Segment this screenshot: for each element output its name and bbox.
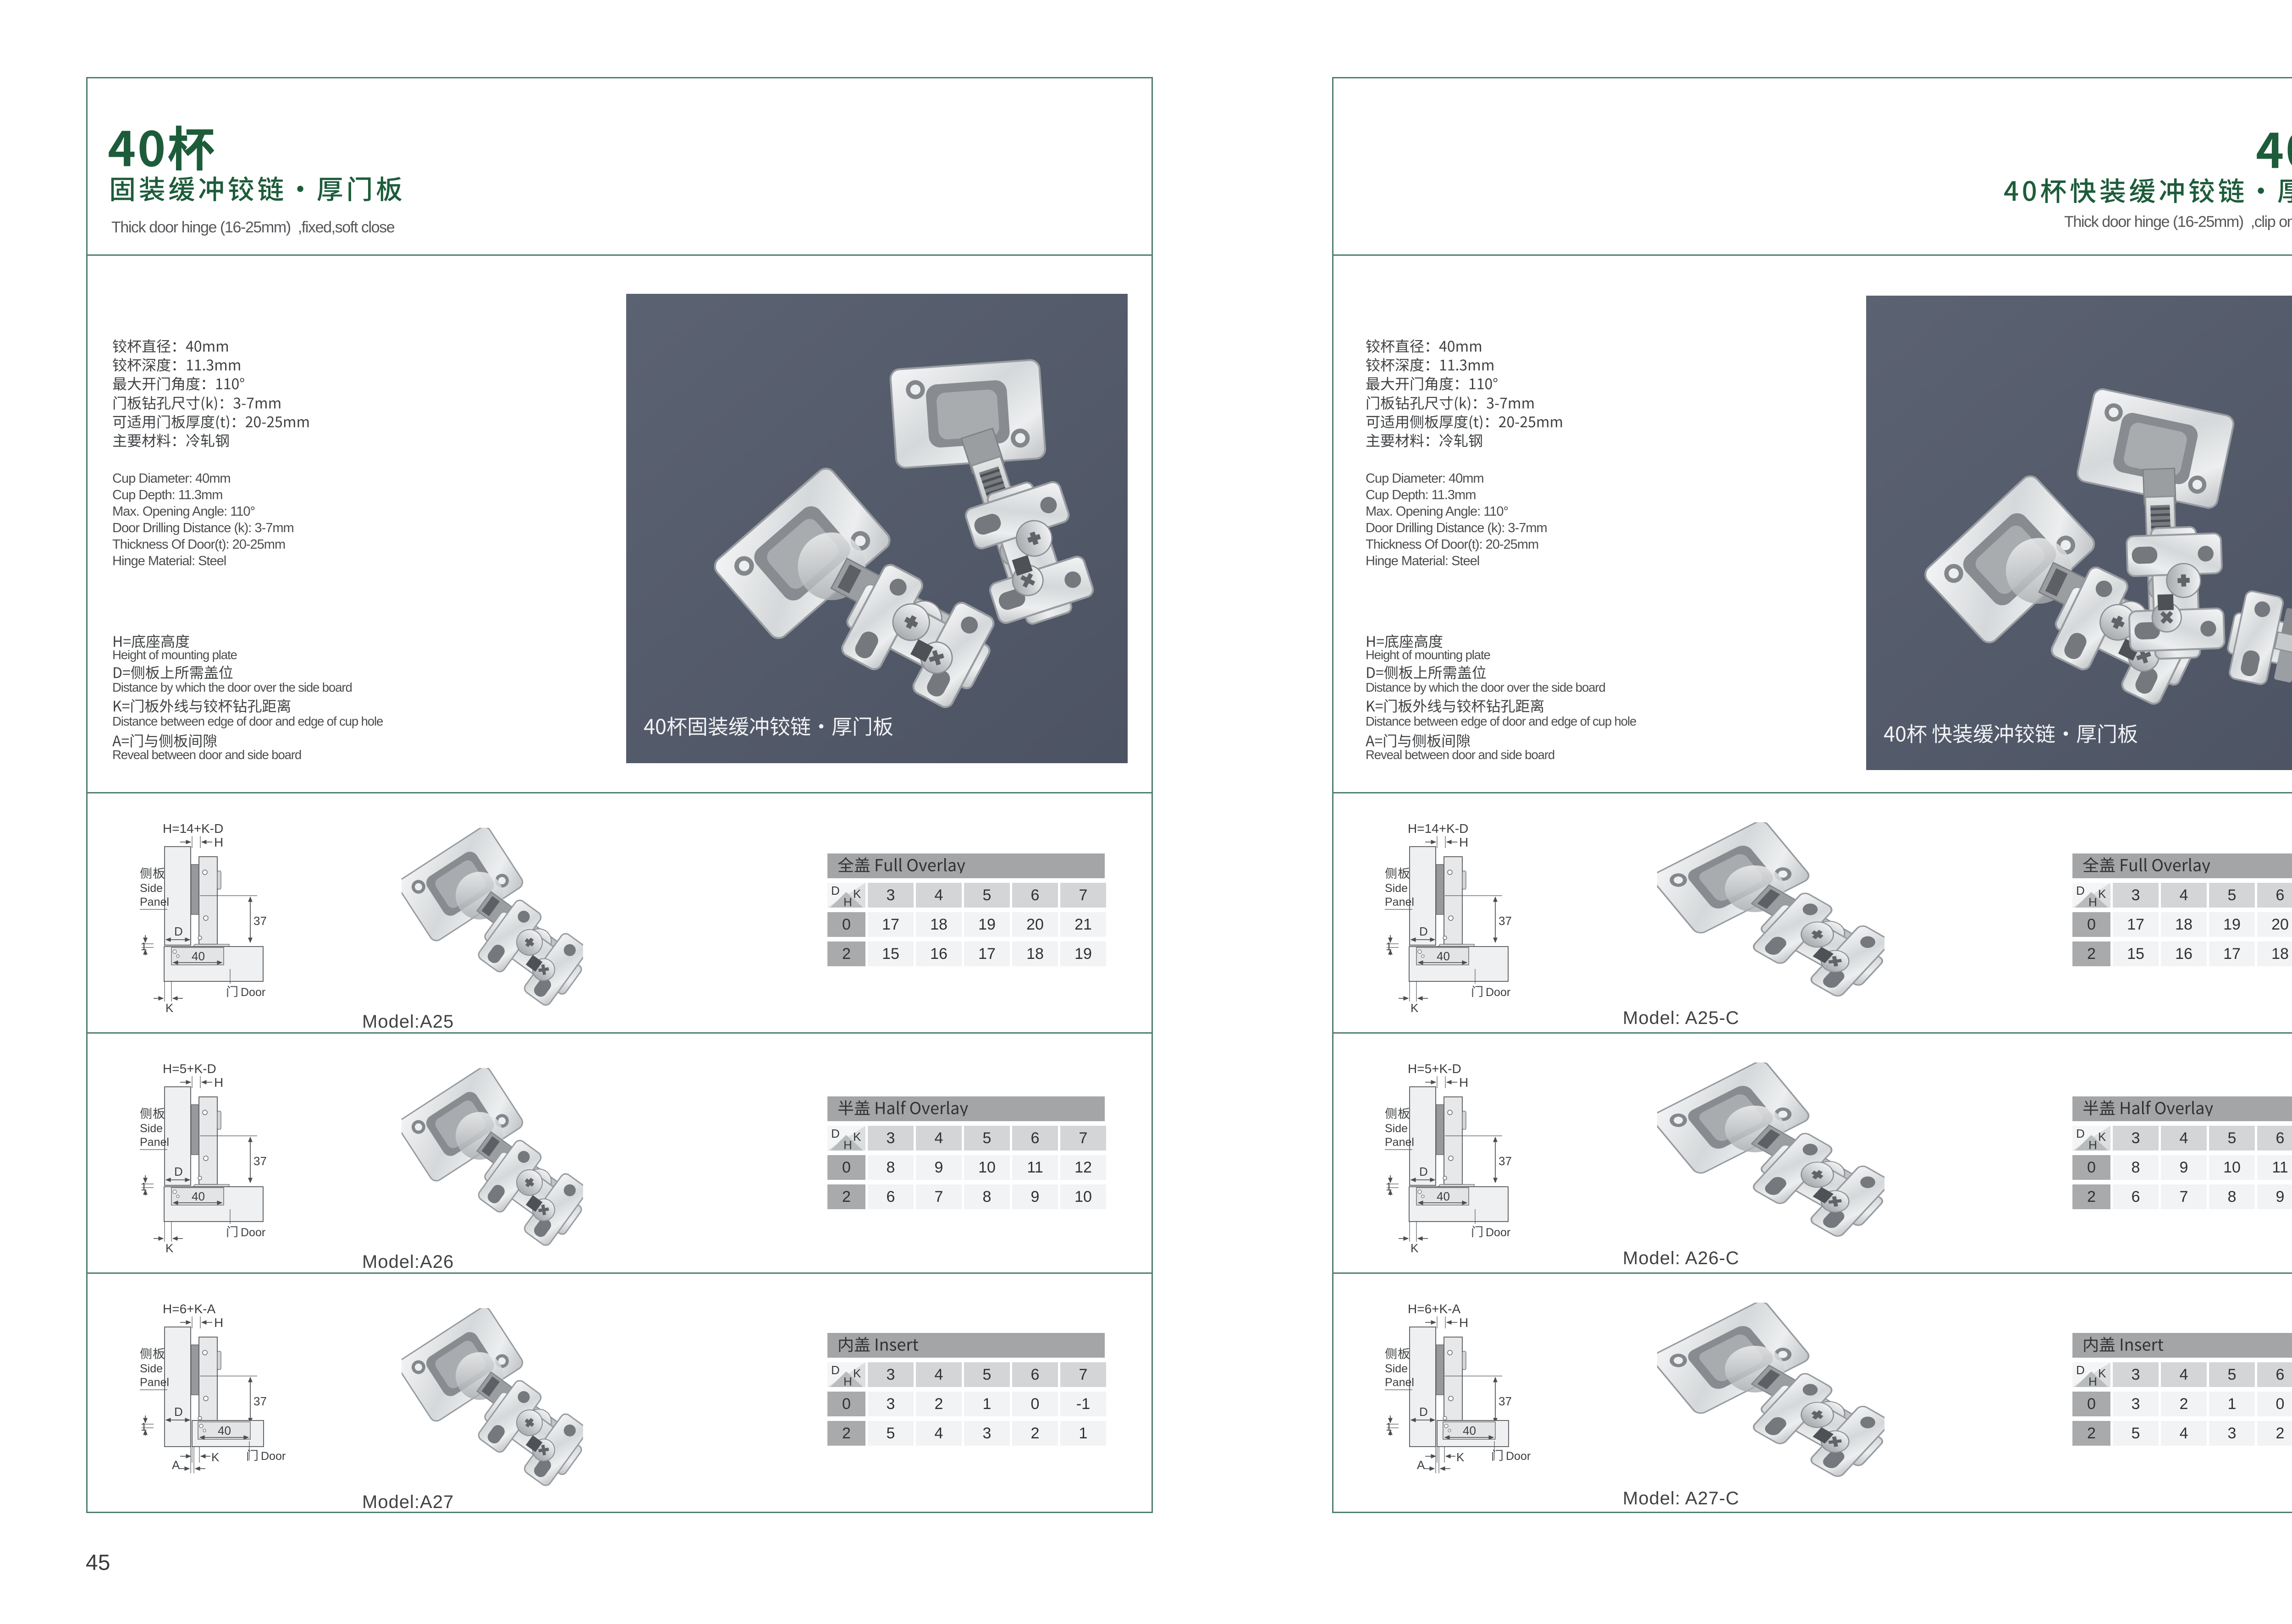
svg-text:D: D <box>174 1165 183 1178</box>
svg-text:Side: Side <box>140 1122 163 1135</box>
svg-text:40: 40 <box>1437 1189 1450 1203</box>
svg-text:Side: Side <box>140 1362 163 1375</box>
svg-text:H=14+K-D: H=14+K-D <box>1408 821 1468 836</box>
svg-text:1: 1 <box>1386 1181 1392 1193</box>
svg-text:H: H <box>2088 895 2097 908</box>
svg-text:K: K <box>165 1241 174 1255</box>
svg-text:Side: Side <box>1385 1122 1408 1135</box>
svg-text:40: 40 <box>1463 1424 1476 1437</box>
svg-text:D: D <box>831 1127 840 1140</box>
svg-text:K: K <box>2098 1130 2106 1144</box>
svg-text:Panel: Panel <box>1385 896 1414 908</box>
svg-text:40: 40 <box>218 1424 231 1437</box>
svg-text:40: 40 <box>192 1189 205 1203</box>
svg-text:37: 37 <box>1499 1394 1512 1408</box>
svg-text:D: D <box>2076 1127 2085 1140</box>
svg-text:Door: Door <box>1506 1450 1531 1463</box>
svg-text:H: H <box>214 1075 223 1090</box>
svg-text:1: 1 <box>141 1181 147 1193</box>
svg-text:Panel: Panel <box>140 1136 169 1149</box>
svg-text:K: K <box>853 1130 861 1144</box>
svg-text:D: D <box>1419 1405 1428 1419</box>
svg-text:K: K <box>165 1001 174 1015</box>
svg-text:K: K <box>853 887 861 901</box>
svg-text:H: H <box>843 1375 852 1387</box>
svg-text:D: D <box>2076 884 2085 897</box>
svg-text:A: A <box>1417 1458 1425 1472</box>
svg-text:37: 37 <box>253 1154 267 1168</box>
svg-text:H=14+K-D: H=14+K-D <box>163 821 223 836</box>
svg-text:Door: Door <box>261 1450 286 1463</box>
svg-text:Door: Door <box>1486 1226 1510 1239</box>
svg-text:37: 37 <box>1499 914 1512 928</box>
svg-text:1: 1 <box>141 941 147 953</box>
svg-text:40: 40 <box>1437 949 1450 963</box>
svg-text:H: H <box>214 835 223 849</box>
svg-text:Panel: Panel <box>140 896 169 908</box>
svg-text:H: H <box>2088 1375 2097 1387</box>
svg-text:K: K <box>1410 1241 1419 1255</box>
svg-text:H: H <box>1459 1075 1468 1090</box>
svg-text:K: K <box>853 1366 861 1380</box>
svg-text:A: A <box>172 1458 180 1472</box>
svg-text:Side: Side <box>1385 882 1408 895</box>
svg-text:40: 40 <box>192 949 205 963</box>
svg-text:1: 1 <box>1386 1421 1392 1433</box>
svg-text:H: H <box>1459 835 1468 849</box>
svg-text:D: D <box>2076 1363 2085 1377</box>
svg-text:K: K <box>1410 1001 1419 1015</box>
svg-text:1: 1 <box>1386 941 1392 953</box>
svg-text:D: D <box>174 925 183 938</box>
svg-text:D: D <box>174 1405 183 1419</box>
svg-text:D: D <box>831 1363 840 1377</box>
svg-text:Panel: Panel <box>140 1376 169 1389</box>
svg-text:H=6+K-A: H=6+K-A <box>163 1302 215 1316</box>
svg-text:37: 37 <box>253 914 267 928</box>
svg-text:Door: Door <box>241 986 265 999</box>
svg-text:37: 37 <box>1499 1154 1512 1168</box>
svg-text:Panel: Panel <box>1385 1376 1414 1389</box>
svg-text:H=5+K-D: H=5+K-D <box>163 1062 216 1076</box>
svg-text:H: H <box>1459 1316 1468 1330</box>
svg-text:D: D <box>831 884 840 897</box>
svg-text:Door: Door <box>241 1226 265 1239</box>
svg-text:H: H <box>2088 1138 2097 1151</box>
svg-text:Panel: Panel <box>1385 1136 1414 1149</box>
svg-text:H=6+K-A: H=6+K-A <box>1408 1302 1460 1316</box>
svg-text:D: D <box>1419 1165 1428 1178</box>
svg-text:H=5+K-D: H=5+K-D <box>1408 1062 1461 1076</box>
svg-text:H: H <box>843 895 852 908</box>
svg-text:Side: Side <box>1385 1362 1408 1375</box>
svg-text:H: H <box>843 1138 852 1151</box>
svg-text:37: 37 <box>253 1394 267 1408</box>
svg-text:Door: Door <box>1486 986 1510 999</box>
svg-text:K: K <box>1456 1450 1465 1464</box>
svg-text:Side: Side <box>140 882 163 895</box>
svg-text:K: K <box>2098 887 2106 901</box>
svg-text:D: D <box>1419 925 1428 938</box>
svg-text:K: K <box>211 1450 220 1464</box>
svg-text:H: H <box>214 1316 223 1330</box>
svg-text:K: K <box>2098 1366 2106 1380</box>
svg-text:1: 1 <box>141 1421 147 1433</box>
